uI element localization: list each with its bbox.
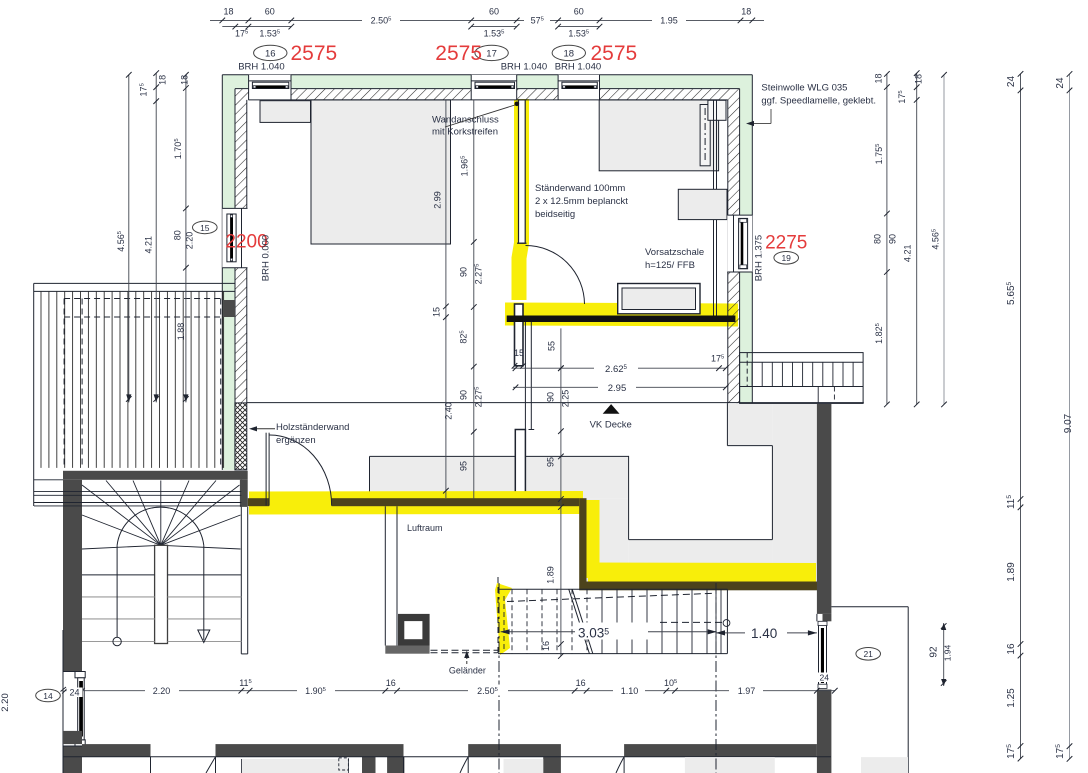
svg-text:90: 90: [888, 234, 898, 244]
svg-text:Steinwolle WLG 035: Steinwolle WLG 035: [761, 83, 847, 94]
svg-text:mit Korkstreifen: mit Korkstreifen: [432, 127, 498, 138]
svg-text:21: 21: [863, 649, 873, 659]
svg-text:24: 24: [1055, 77, 1066, 89]
svg-text:18: 18: [180, 75, 190, 85]
svg-text:BRH 0.000: BRH 0.000: [261, 235, 272, 281]
svg-text:16: 16: [386, 678, 396, 688]
svg-text:BRH 1.375: BRH 1.375: [754, 235, 765, 281]
svg-text:Luftraum: Luftraum: [407, 523, 443, 533]
svg-text:24: 24: [820, 673, 830, 683]
svg-text:beidseitig: beidseitig: [535, 209, 575, 220]
svg-text:ergänzen: ergänzen: [276, 435, 316, 446]
svg-text:60: 60: [265, 7, 275, 17]
svg-text:1.88: 1.88: [176, 323, 186, 341]
svg-text:55: 55: [547, 341, 557, 351]
svg-text:18: 18: [914, 74, 924, 84]
svg-text:14: 14: [43, 691, 53, 701]
svg-text:24: 24: [69, 688, 79, 698]
svg-text:2.20: 2.20: [0, 693, 11, 712]
svg-text:95: 95: [459, 461, 469, 471]
svg-text:Wandanschluss: Wandanschluss: [432, 115, 499, 126]
svg-text:16: 16: [265, 49, 276, 60]
svg-text:15: 15: [432, 307, 442, 317]
svg-text:90: 90: [459, 267, 469, 277]
svg-text:BRH 1.040: BRH 1.040: [555, 62, 601, 73]
svg-text:4.21: 4.21: [144, 236, 154, 254]
svg-text:1.89: 1.89: [546, 566, 556, 584]
svg-text:18: 18: [223, 7, 233, 17]
svg-text:1.25: 1.25: [1006, 688, 1017, 708]
svg-text:95: 95: [546, 457, 556, 467]
svg-text:15: 15: [514, 348, 524, 358]
svg-text:VK Decke: VK Decke: [590, 420, 632, 431]
svg-text:19: 19: [781, 253, 791, 263]
svg-text:2 x 12.5mm beplanckt: 2 x 12.5mm beplanckt: [535, 196, 628, 207]
svg-text:1.94: 1.94: [943, 644, 953, 661]
svg-text:18: 18: [564, 49, 575, 60]
svg-text:17: 17: [486, 49, 497, 60]
svg-text:h=125/ FFB: h=125/ FFB: [645, 260, 695, 271]
svg-text:2575: 2575: [435, 42, 482, 65]
svg-text:16: 16: [541, 641, 551, 651]
svg-text:1.40: 1.40: [751, 626, 777, 641]
svg-text:2.40: 2.40: [444, 402, 454, 420]
svg-text:80: 80: [173, 230, 183, 240]
svg-text:16: 16: [576, 678, 586, 688]
svg-text:2275: 2275: [765, 233, 807, 254]
svg-text:Geländer: Geländer: [449, 666, 486, 676]
svg-text:24: 24: [1006, 76, 1017, 88]
svg-text:18: 18: [874, 73, 884, 83]
svg-text:1.97: 1.97: [738, 686, 756, 696]
svg-text:Vorsatzschale: Vorsatzschale: [645, 247, 704, 258]
svg-text:60: 60: [489, 7, 499, 17]
svg-text:Ständerwand 100mm: Ständerwand 100mm: [535, 183, 625, 194]
svg-text:4.21: 4.21: [903, 245, 913, 263]
svg-text:2.95: 2.95: [608, 383, 627, 394]
svg-text:Holzständerwand: Holzständerwand: [276, 422, 349, 433]
svg-text:2.20: 2.20: [153, 686, 171, 696]
svg-text:BRH 1.040: BRH 1.040: [501, 62, 547, 73]
svg-text:80: 80: [873, 234, 883, 244]
svg-text:9.07: 9.07: [1063, 413, 1074, 433]
svg-text:2.20: 2.20: [184, 232, 194, 250]
svg-text:18: 18: [158, 75, 168, 85]
svg-text:1.10: 1.10: [621, 686, 639, 696]
svg-text:92: 92: [929, 646, 940, 658]
svg-text:15: 15: [200, 223, 210, 233]
svg-text:90: 90: [459, 390, 469, 400]
svg-text:2.99: 2.99: [433, 191, 443, 209]
svg-text:2575: 2575: [291, 42, 338, 65]
svg-text:ggf. Speedlamelle, geklebt.: ggf. Speedlamelle, geklebt.: [761, 96, 876, 107]
svg-text:90: 90: [546, 392, 556, 402]
svg-text:2.25: 2.25: [561, 390, 571, 408]
svg-text:1.89: 1.89: [1006, 562, 1017, 582]
svg-text:18: 18: [741, 7, 751, 17]
svg-text:16: 16: [1006, 643, 1017, 655]
svg-text:1.95: 1.95: [660, 16, 678, 26]
svg-text:60: 60: [574, 7, 584, 17]
svg-text:BRH 1.040: BRH 1.040: [238, 62, 284, 73]
